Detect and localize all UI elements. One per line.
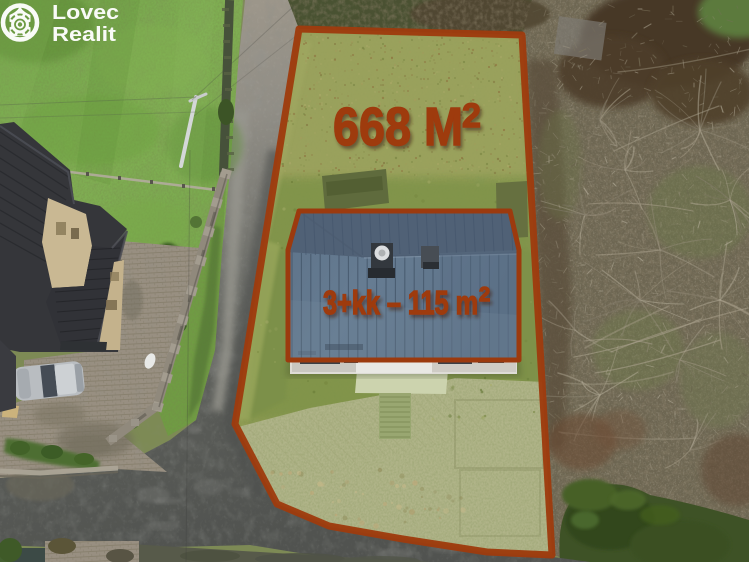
svg-text:Lovec: Lovec: [52, 2, 119, 24]
svg-text:3+kk – 115 m: 3+kk – 115 m: [323, 284, 478, 321]
svg-text:Realit: Realit: [52, 24, 116, 46]
svg-text:2: 2: [462, 97, 481, 135]
svg-text:2: 2: [479, 284, 490, 306]
svg-text:668 M: 668 M: [333, 97, 463, 157]
